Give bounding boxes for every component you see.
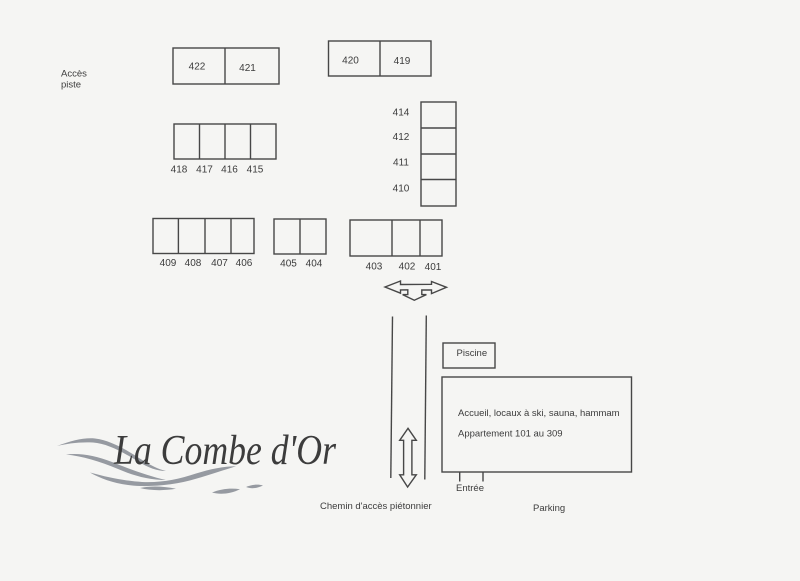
svg-text:Accueil, locaux à ski, sauna,: Accueil, locaux à ski, sauna, hammam <box>458 408 620 419</box>
svg-text:Appartement 101 au 309: Appartement 101 au 309 <box>458 429 563 440</box>
svg-text:Entrée: Entrée <box>456 483 484 494</box>
svg-text:414: 414 <box>393 108 410 119</box>
svg-text:La Combe d'Or: La Combe d'Or <box>113 428 336 474</box>
svg-text:Piscine: Piscine <box>457 348 488 359</box>
svg-text:403: 403 <box>366 262 383 273</box>
svg-text:401: 401 <box>425 262 442 273</box>
svg-text:409: 409 <box>160 258 177 269</box>
svg-text:407: 407 <box>211 258 228 269</box>
svg-text:405: 405 <box>280 259 297 270</box>
svg-text:406: 406 <box>236 258 253 269</box>
svg-text:402: 402 <box>399 262 416 273</box>
svg-text:421: 421 <box>239 63 256 74</box>
svg-text:Parking: Parking <box>533 503 565 514</box>
svg-text:415: 415 <box>247 165 264 176</box>
svg-text:Chemin d'accès piétonnier: Chemin d'accès piétonnier <box>320 501 432 512</box>
svg-text:422: 422 <box>189 62 206 73</box>
svg-text:420: 420 <box>342 56 359 67</box>
svg-text:piste: piste <box>61 80 81 91</box>
svg-text:412: 412 <box>393 132 410 143</box>
svg-text:404: 404 <box>306 259 323 270</box>
svg-text:419: 419 <box>394 56 411 67</box>
svg-text:417: 417 <box>196 165 213 176</box>
svg-text:411: 411 <box>393 158 409 169</box>
svg-text:410: 410 <box>393 184 410 195</box>
svg-text:416: 416 <box>221 165 238 176</box>
svg-text:Accès: Accès <box>61 69 87 80</box>
svg-text:408: 408 <box>185 258 202 269</box>
svg-text:418: 418 <box>171 165 188 176</box>
